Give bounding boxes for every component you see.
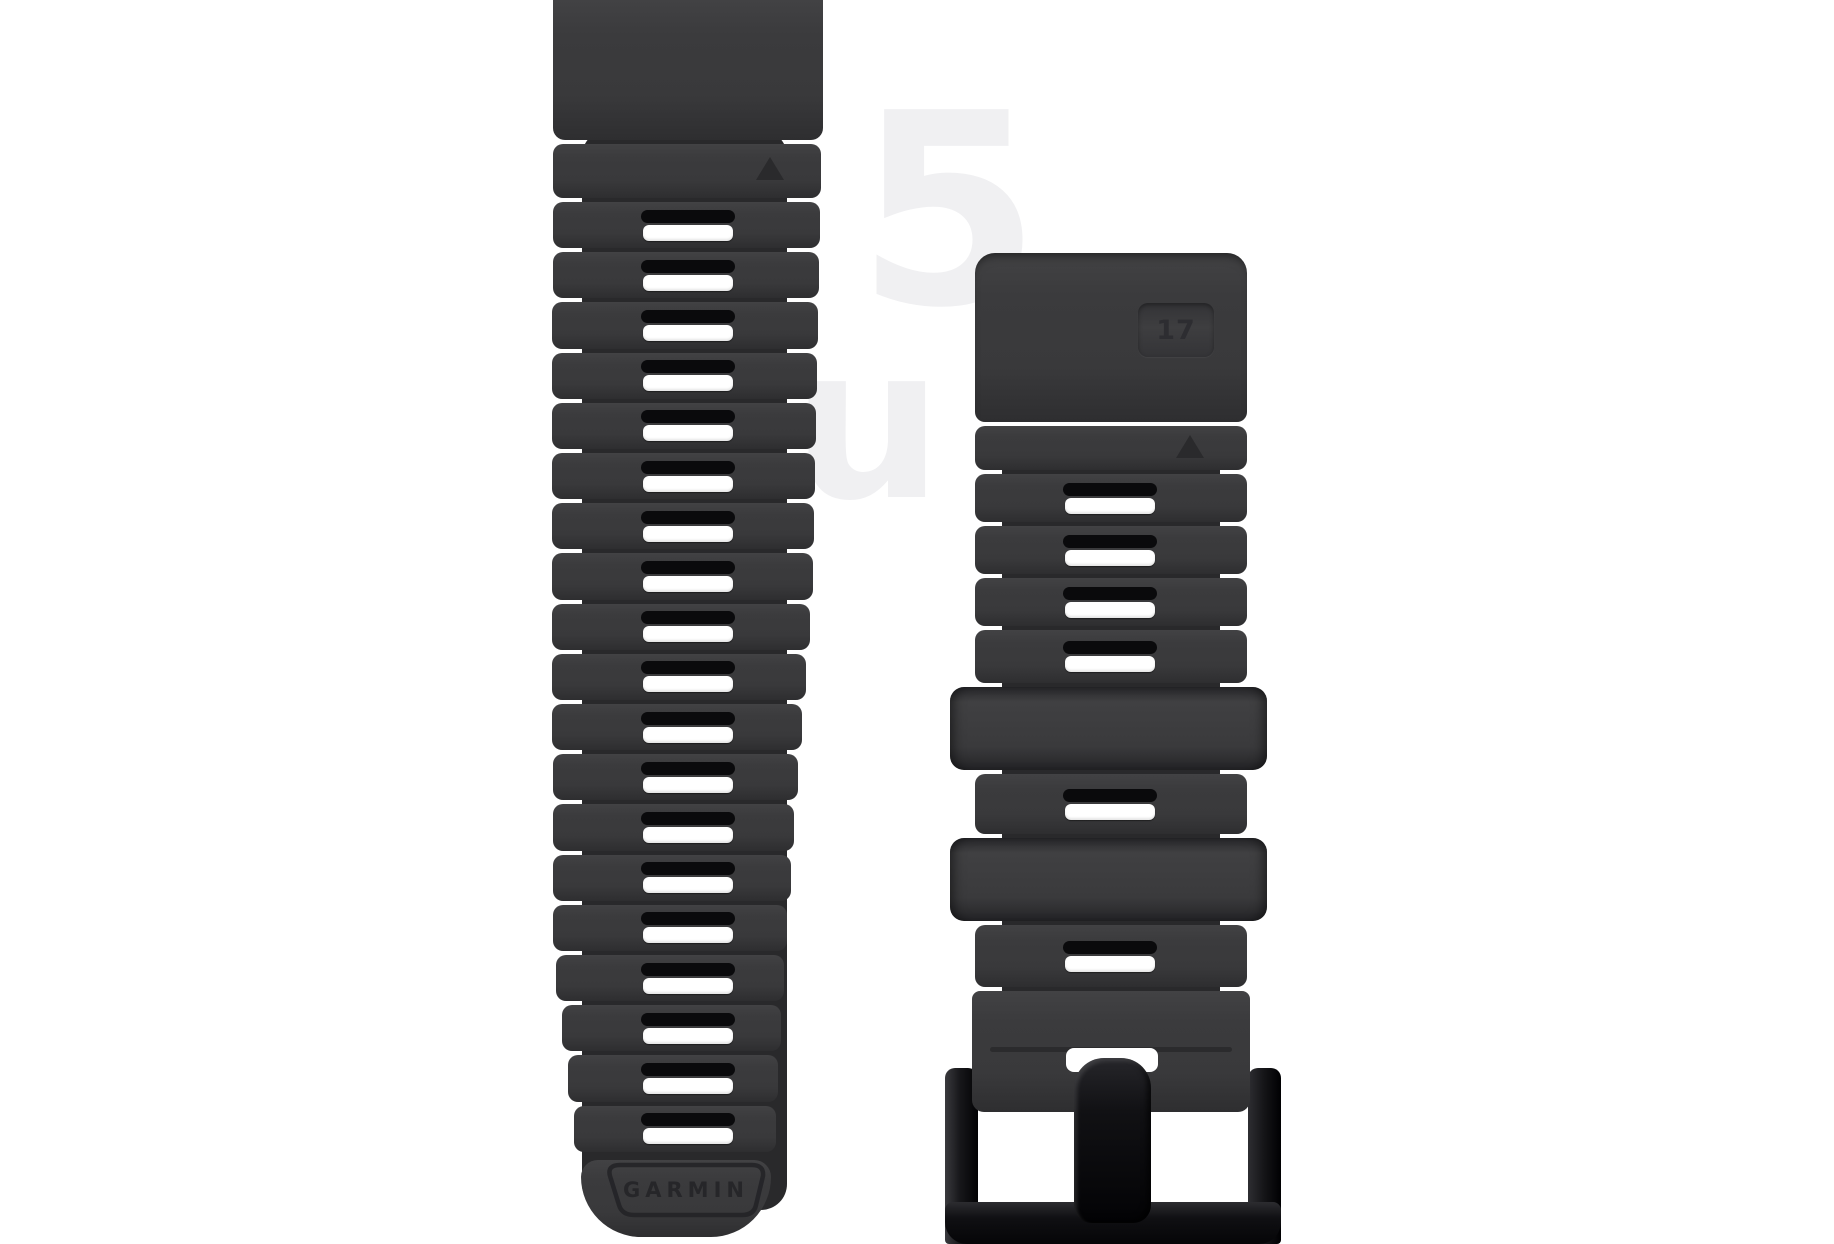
alignment-triangle-marker <box>756 157 784 180</box>
left-strap-rib-segment <box>556 955 783 1001</box>
strap-slot-slit <box>641 661 735 674</box>
strap-slot-slit <box>641 762 735 775</box>
strap-keeper-loop <box>950 838 1267 921</box>
strap-slot-slit <box>641 611 735 624</box>
right-strap-rib-segment <box>975 774 1247 834</box>
strap-slot-hole <box>1065 550 1155 566</box>
strap-slot-slit <box>641 1063 735 1076</box>
size-emboss-badge: 17 <box>1138 303 1214 357</box>
left-strap-rib-segment <box>552 453 814 499</box>
strap-slot-hole <box>643 777 733 793</box>
buckle-prong <box>1074 1058 1151 1223</box>
left-strap-rib-segment <box>552 353 816 399</box>
strap-slot-hole <box>643 375 733 391</box>
left-strap-rib-segment <box>568 1055 778 1101</box>
strap-slot-hole <box>643 727 733 743</box>
left-strap-rib-segment <box>552 704 802 750</box>
left-strap-rib-segment <box>553 202 820 248</box>
strap-slot-hole <box>643 225 733 241</box>
strap-slot-hole <box>643 827 733 843</box>
strap-slot-slit <box>641 812 735 825</box>
right-strap-rib-segment <box>975 578 1247 626</box>
strap-slot-hole <box>643 676 733 692</box>
left-strap-rib-segment <box>552 654 806 700</box>
strap-slot-slit <box>641 410 735 423</box>
right-strap-rib-segment <box>975 526 1247 574</box>
strap-slot-hole <box>643 927 733 943</box>
garmin-logo-text: GARMIN <box>623 1178 749 1202</box>
strap-slot-slit <box>1063 641 1157 654</box>
strap-slot-slit <box>1063 789 1157 802</box>
strap-slot-slit <box>641 210 735 223</box>
strap-slot-hole <box>643 476 733 492</box>
strap-slot-slit <box>641 511 735 524</box>
strap-slot-hole <box>643 1078 733 1094</box>
strap-slot-slit <box>1063 587 1157 600</box>
strap-slot-slit <box>641 712 735 725</box>
strap-slot-slit <box>641 310 735 323</box>
left-strap-rib-segment <box>553 855 791 901</box>
strap-slot-slit <box>641 1113 735 1126</box>
left-strap-rib-segment <box>553 804 795 850</box>
strap-slot-hole <box>643 877 733 893</box>
strap-slot-hole <box>643 978 733 994</box>
product-photo-canvas: 5 u 17 GARMIN <box>0 0 1834 1244</box>
left-strap-rib-segment <box>553 905 787 951</box>
strap-slot-slit <box>1063 483 1157 496</box>
strap-slot-slit <box>1063 535 1157 548</box>
strap-slot-hole <box>643 1028 733 1044</box>
left-strap-rib-segment <box>552 302 817 348</box>
strap-slot-hole <box>1065 498 1155 514</box>
alignment-triangle-marker <box>1176 435 1204 458</box>
strap-slot-hole <box>1065 956 1155 972</box>
left-strap-rib-segment <box>562 1005 781 1051</box>
strap-slot-hole <box>643 626 733 642</box>
left-strap-rib-segment <box>552 403 815 449</box>
left-strap-rib-segment <box>552 553 812 599</box>
strap-slot-slit <box>641 963 735 976</box>
strap-slot-slit <box>641 260 735 273</box>
right-strap-rib-segment <box>975 925 1247 987</box>
garmin-logo-emboss: GARMIN <box>598 1158 774 1220</box>
strap-slot-hole <box>1065 656 1155 672</box>
strap-slot-slit <box>641 461 735 474</box>
strap-slot-hole <box>643 275 733 291</box>
right-strap-rib-segment <box>975 630 1247 683</box>
strap-keeper-loop <box>950 687 1267 770</box>
left-strap-rib-segment <box>553 252 819 298</box>
strap-slot-hole <box>1065 804 1155 820</box>
strap-slot-slit <box>641 912 735 925</box>
strap-slot-hole <box>643 1128 733 1144</box>
strap-slot-slit <box>641 360 735 373</box>
strap-slot-hole <box>643 325 733 341</box>
strap-slot-hole <box>1065 602 1155 618</box>
left-strap-rib-segment <box>552 604 810 650</box>
left-strap-rib-segment <box>553 754 799 800</box>
left-strap-marker-segment <box>553 144 822 198</box>
strap-slot-hole <box>643 576 733 592</box>
strap-slot-slit <box>641 862 735 875</box>
strap-slot-hole <box>643 425 733 441</box>
strap-slot-slit <box>641 561 735 574</box>
left-strap-rib-segment <box>574 1106 775 1152</box>
left-strap-rib-segment <box>552 503 813 549</box>
strap-slot-hole <box>643 526 733 542</box>
right-strap-marker-segment <box>975 426 1247 470</box>
left-strap-top-block <box>553 0 824 140</box>
strap-slot-slit <box>641 1013 735 1026</box>
right-strap-rib-segment <box>975 474 1247 522</box>
strap-slot-slit <box>1063 941 1157 954</box>
